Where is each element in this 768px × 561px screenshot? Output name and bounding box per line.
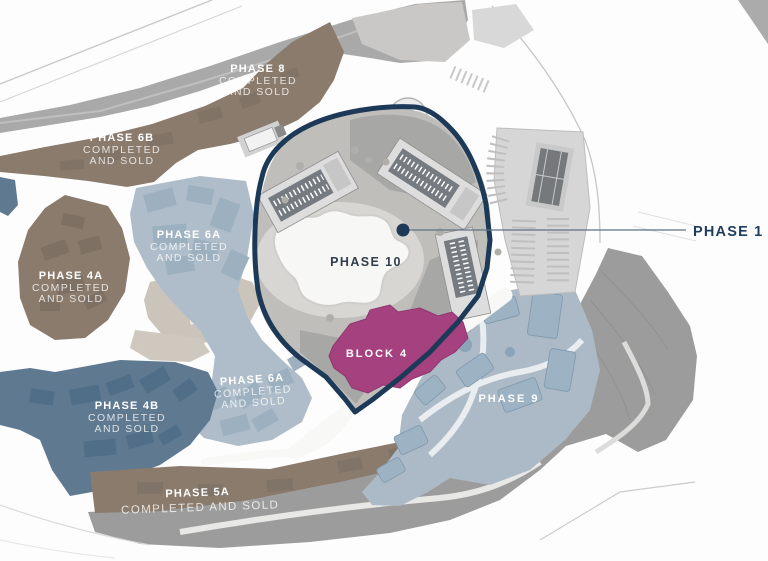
shore-line bbox=[540, 482, 695, 540]
crosswalk bbox=[452, 72, 490, 88]
site-plan-canvas: PHASE 8 COMPLETED AND SOLD PHASE 6B COMP… bbox=[0, 0, 768, 561]
phase1-callout-label: PHASE 1 bbox=[693, 224, 763, 240]
phase4a-title: PHASE 4A bbox=[39, 270, 104, 282]
road-edge-line bbox=[0, 0, 212, 84]
label-phase-4b: PHASE 4B COMPLETED AND SOLD bbox=[88, 400, 166, 435]
phase6a-north-status: AND SOLD bbox=[157, 252, 222, 264]
phase8-title: PHASE 8 bbox=[230, 63, 285, 75]
label-phase-8: PHASE 8 COMPLETED AND SOLD bbox=[219, 63, 297, 98]
label-phase-6b: PHASE 6B COMPLETED AND SOLD bbox=[83, 132, 161, 167]
phase6b-title: PHASE 6B bbox=[90, 132, 155, 144]
phase6a-north-title: PHASE 6A bbox=[157, 229, 222, 241]
phase1-dot bbox=[397, 224, 410, 237]
phase8-status: AND SOLD bbox=[226, 86, 291, 98]
region-edge-blue bbox=[0, 177, 18, 216]
shore-line bbox=[0, 540, 115, 558]
phase9-title: PHASE 9 bbox=[478, 393, 539, 405]
phase5a-title: PHASE 5A bbox=[165, 486, 230, 500]
corner-slope bbox=[738, 0, 768, 44]
phase10-title: PHASE 10 bbox=[330, 255, 402, 269]
label-phase-6a-north: PHASE 6A COMPLETED AND SOLD bbox=[150, 229, 228, 264]
phase4a-status: AND SOLD bbox=[39, 293, 104, 305]
block4-title: BLOCK 4 bbox=[346, 348, 408, 360]
label-phase-6a-south: PHASE 6A COMPLETED AND SOLD bbox=[213, 371, 293, 411]
label-phase-4a: PHASE 4A COMPLETED AND SOLD bbox=[32, 270, 110, 305]
phase6b-status: AND SOLD bbox=[90, 155, 155, 167]
phase9-plaza bbox=[505, 347, 515, 357]
faint-parking-lines bbox=[633, 212, 700, 241]
site-plan-map: PHASE 8 COMPLETED AND SOLD PHASE 6B COMP… bbox=[0, 0, 768, 561]
phase4b-title: PHASE 4B bbox=[95, 400, 160, 412]
phase4b-status: AND SOLD bbox=[95, 423, 160, 435]
north-parcel bbox=[472, 4, 534, 48]
